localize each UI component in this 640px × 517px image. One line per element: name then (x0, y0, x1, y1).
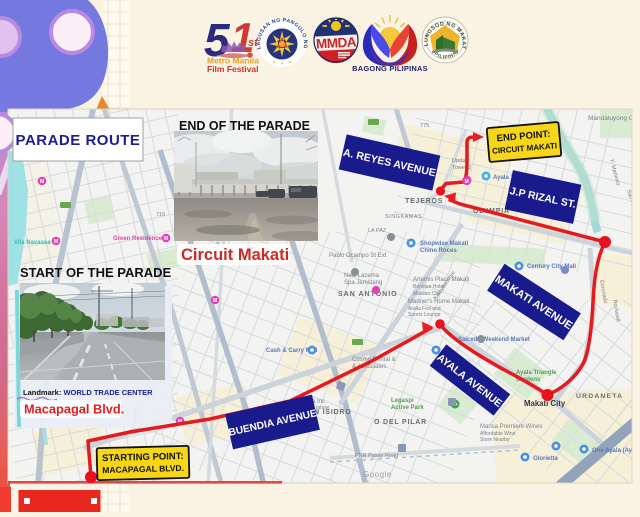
svg-text:O DEL PILAR: O DEL PILAR (374, 419, 427, 426)
svg-text:Store Nearby: Store Nearby (480, 437, 510, 443)
svg-text:TEJEROS: TEJEROS (405, 198, 443, 205)
svg-text:URDANETA: URDANETA (576, 393, 623, 400)
svg-text:Landmark: WORLD TRADE CENTER: Landmark: WORLD TRADE CENTER (23, 388, 153, 397)
svg-text:SINGKAMAS: SINGKAMAS (385, 214, 422, 220)
svg-text:MMDA: MMDA (316, 34, 357, 51)
svg-text:Vila Navassa: Vila Navassa (14, 240, 51, 246)
svg-text:Chino Roces: Chino Roces (420, 248, 457, 254)
svg-text:Pablo Ocampo St Ext: Pablo Ocampo St Ext (329, 253, 387, 259)
svg-text:Mansa Premiere Wines: Mansa Premiere Wines (480, 424, 542, 430)
svg-text:END OF THE PARADE: END OF THE PARADE (179, 119, 310, 133)
svg-text:STARTING POINT:: STARTING POINT: (102, 451, 184, 464)
svg-text:716: 716 (156, 212, 165, 218)
svg-text:M: M (164, 236, 168, 242)
svg-text:M: M (40, 179, 44, 185)
svg-text:PNR Pasay Road: PNR Pasay Road (355, 453, 398, 459)
svg-text:One Ayala (Aye: One Ayala (Aye (592, 448, 636, 454)
svg-text:BAGONG PILIPINAS: BAGONG PILIPINAS (352, 64, 428, 73)
svg-text:Spa Jemstang: Spa Jemstang (344, 280, 382, 286)
svg-text:Green Residences: Green Residences (113, 236, 166, 242)
svg-text:Macapagal Blvd.: Macapagal Blvd. (24, 402, 124, 417)
svg-text:Glorietta: Glorietta (533, 456, 558, 462)
svg-text:Artemis Place Makati: Artemis Place Makati (413, 277, 469, 283)
svg-text:PARADE ROUTE: PARADE ROUTE (16, 132, 141, 149)
svg-text:Shopwise Makati: Shopwise Makati (420, 241, 469, 247)
svg-text:START OF THE PARADE: START OF THE PARADE (20, 265, 172, 280)
svg-text:SAN ANTONIO: SAN ANTONIO (338, 291, 398, 298)
svg-text:Active Park: Active Park (391, 405, 424, 411)
svg-text:Mariner's Home Makati: Mariner's Home Makati (408, 299, 470, 305)
svg-text:Salcedo Weekend Market: Salcedo Weekend Market (458, 337, 530, 343)
svg-text:Film Festival: Film Festival (207, 64, 259, 74)
svg-text:LA PAZ: LA PAZ (368, 228, 387, 234)
svg-text:Google: Google (363, 470, 392, 479)
svg-text:New Lazema: New Lazema (344, 273, 380, 279)
svg-text:Legaspi: Legaspi (391, 398, 414, 404)
svg-text:Circuit Makati: Circuit Makati (181, 246, 289, 264)
svg-text:Century City Mall: Century City Mall (527, 264, 576, 270)
svg-text:Ayala Triangle: Ayala Triangle (516, 370, 557, 376)
svg-text:MACAPAGAL BLVD.: MACAPAGAL BLVD. (102, 463, 184, 475)
svg-text:M: M (465, 179, 469, 185)
svg-text:Sports Lounge: Sports Lounge (408, 312, 441, 318)
svg-text:M: M (54, 239, 58, 245)
svg-text:775: 775 (420, 123, 429, 129)
svg-text:M: M (213, 298, 217, 304)
